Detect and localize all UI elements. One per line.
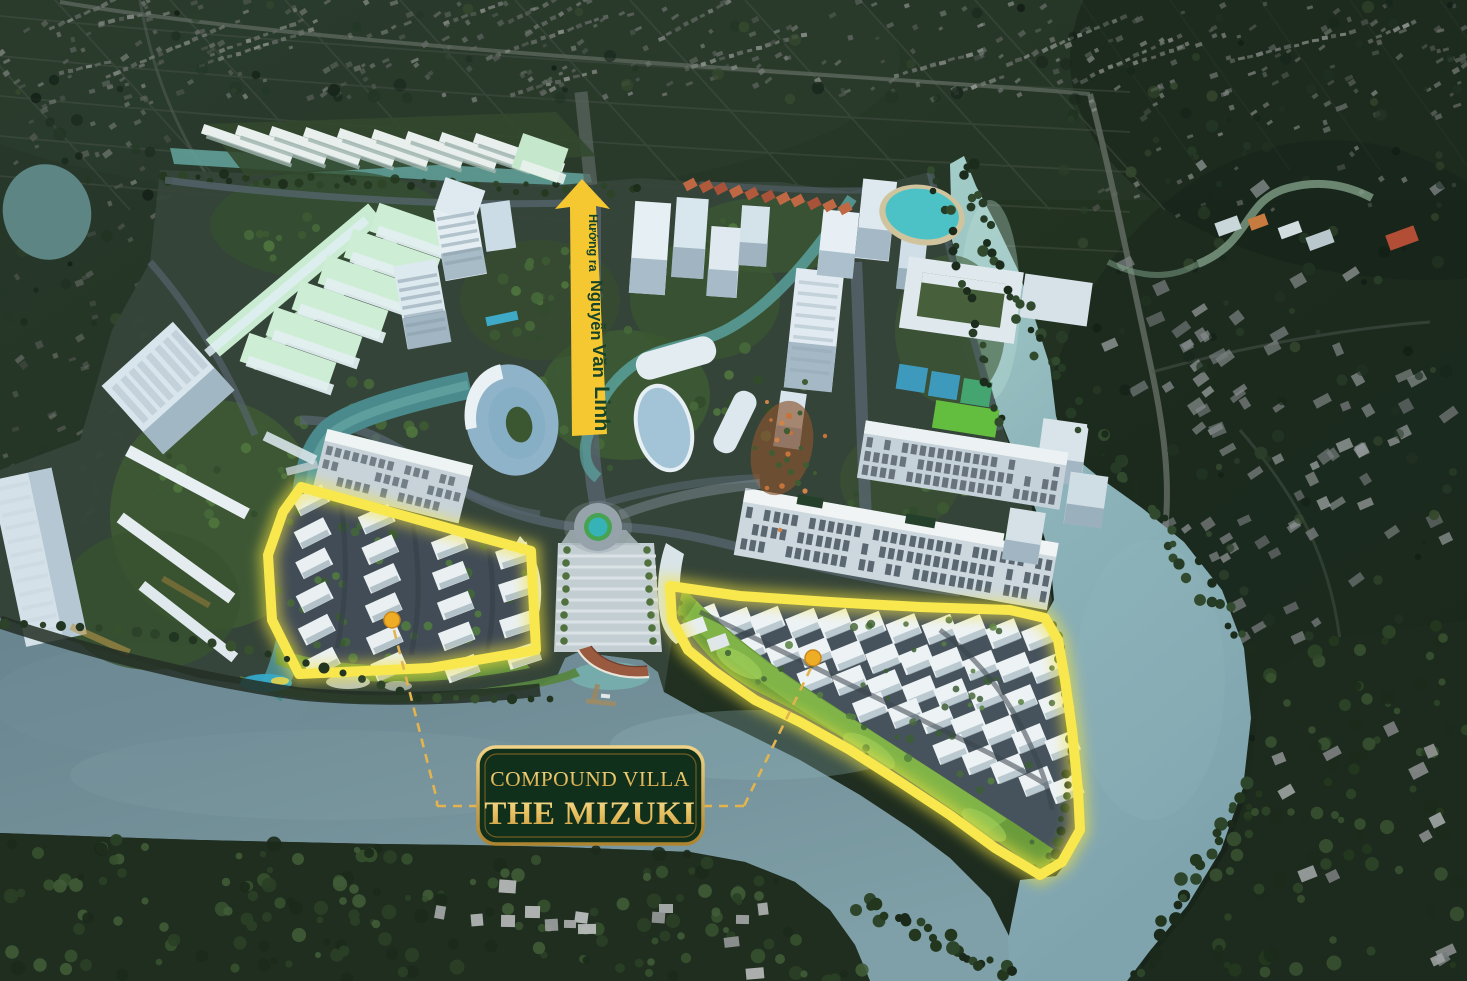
- svg-text:Linh: Linh: [590, 386, 614, 431]
- svg-text:THE MIZUKI: THE MIZUKI: [484, 796, 695, 832]
- svg-text:Văn: Văn: [589, 344, 610, 378]
- svg-text:COMPOUND VILLA: COMPOUND VILLA: [490, 767, 690, 791]
- svg-text:Hướng ra: Hướng ra: [586, 214, 600, 273]
- svg-text:Nguyễn: Nguyễn: [587, 280, 606, 341]
